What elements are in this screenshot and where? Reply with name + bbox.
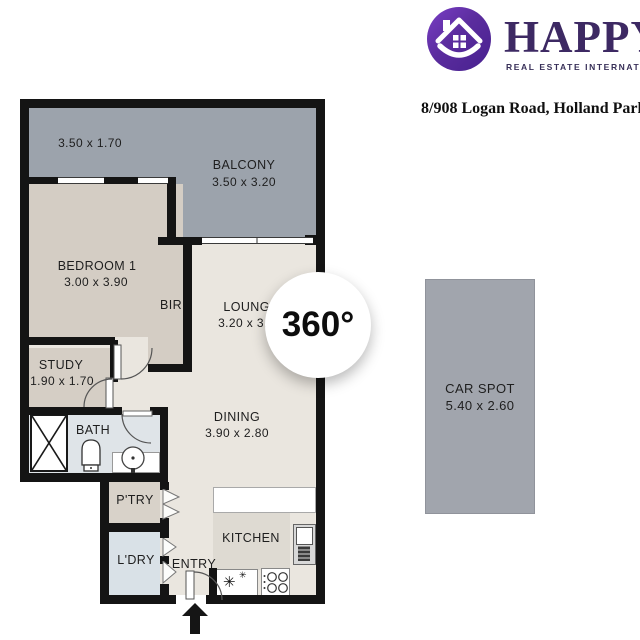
laundry-label: L'DRY (117, 553, 155, 567)
bedroom-window-1 (58, 177, 104, 184)
sink-glyph-small: ✳ (239, 570, 247, 581)
virtual-tour-360-badge[interactable]: 360° (265, 272, 371, 378)
wall-stub-4 (160, 584, 169, 604)
bedroom-window-2 (138, 177, 168, 184)
entry-door-arc (183, 570, 225, 602)
car-spot: CAR SPOT 5.40 x 2.60 (425, 279, 535, 514)
bedroom-label: BEDROOM 1 (58, 259, 137, 273)
entry-arrow-icon (181, 603, 209, 635)
slider-mullion (256, 238, 258, 243)
wall-left-lower (100, 473, 109, 604)
kitchen-bench (213, 487, 316, 513)
wall-bath-bottom (20, 473, 168, 482)
shower-icon (30, 414, 68, 472)
wall-pantry-laundry (100, 523, 160, 532)
study-dims: 1.90 x 1.70 (30, 374, 94, 388)
bedroom-door-arc (112, 342, 154, 384)
toilet-icon (79, 437, 103, 474)
kitchen-label: KITCHEN (222, 531, 280, 545)
wall-bir-right (183, 243, 192, 372)
dining-label: DINING (214, 410, 260, 424)
flyer-canvas: HAPPY REAL ESTATE INTERNATIONAL 8/908 Lo… (0, 0, 640, 640)
bath-label: BATH (76, 423, 110, 437)
car-spot-label: CAR SPOT (445, 381, 515, 396)
bath-door-arc (119, 410, 155, 446)
bir-label: BIR (160, 298, 182, 312)
dining-dims: 3.90 x 2.80 (205, 426, 269, 440)
wall-stub-2 (160, 518, 169, 538)
pantry-bifold-door-icon (162, 489, 182, 520)
wall-bir-bottom (148, 364, 192, 372)
wall-top (20, 99, 325, 108)
balcony-dims: 3.50 x 3.20 (212, 175, 276, 189)
cooktop-icon (261, 568, 290, 596)
wall-left-upper (20, 99, 29, 482)
floor-plan: ✳✳ (0, 0, 640, 640)
entry-label: ENTRY (172, 557, 216, 571)
wall-bir-top (158, 237, 202, 245)
basin-icon (118, 443, 148, 473)
bedroom-dims: 3.00 x 3.90 (64, 275, 128, 289)
fridge-icon (293, 524, 316, 565)
wall-balcony-left (167, 177, 176, 245)
car-spot-dims: 5.40 x 2.60 (446, 398, 515, 413)
study-label: STUDY (39, 358, 83, 372)
balcony-label: BALCONY (213, 158, 276, 172)
wall-bedroom-bottom (29, 337, 115, 345)
laundry-bifold-door-icon-1 (162, 538, 180, 557)
balcony-left-dims: 3.50 x 1.70 (58, 136, 122, 150)
pantry-label: P'TRY (116, 493, 154, 507)
wall-bath-right (160, 407, 168, 482)
